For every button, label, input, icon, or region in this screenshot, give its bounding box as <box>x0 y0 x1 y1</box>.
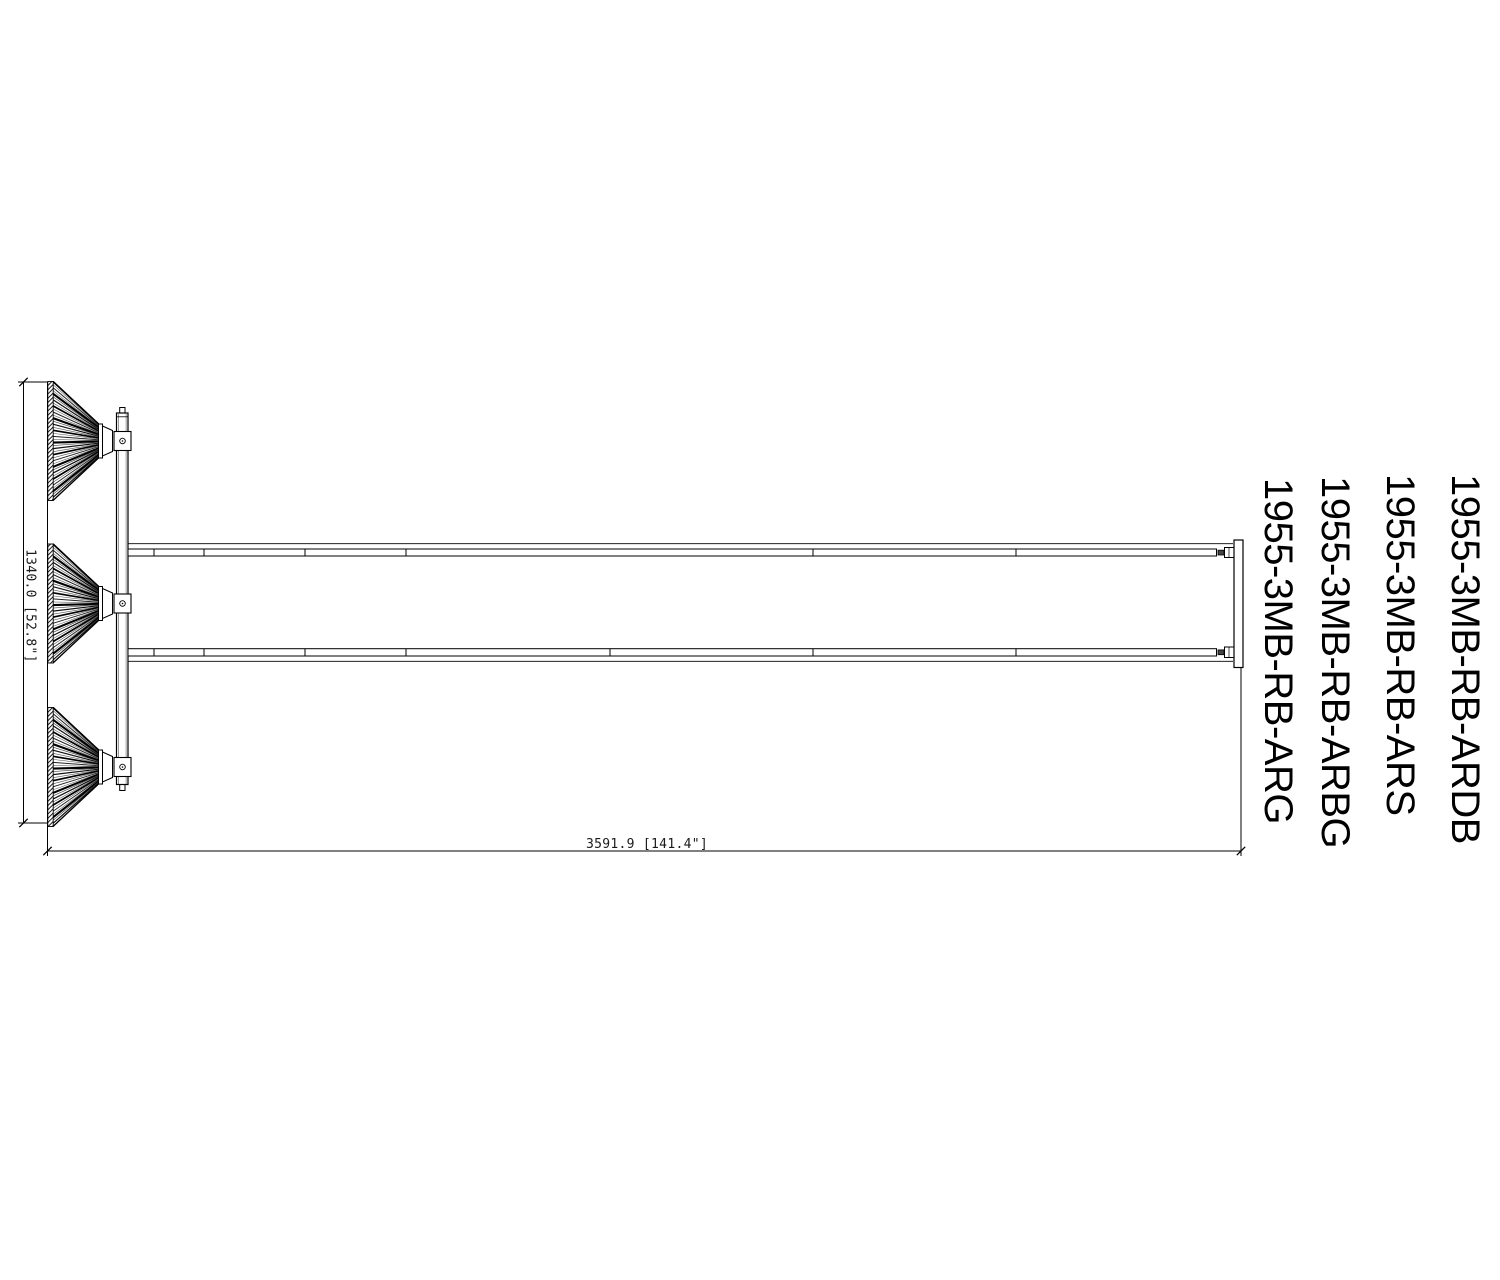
part-label-ars: 1955-3MB-RB-ARS <box>1378 474 1422 816</box>
brush-hub-cone <box>103 426 113 456</box>
mount-plate <box>1234 540 1243 668</box>
bar-top-nub <box>120 408 125 414</box>
drawing-sheet: 1340.0 [52.8"] 3591.9 [141.4"] <box>0 0 1500 1280</box>
mount-block-2 <box>114 594 131 613</box>
lower-rail-pin <box>1218 650 1224 655</box>
part-label-arbg: 1955-3MB-RB-ARBG <box>1313 476 1357 848</box>
brush-back-band <box>48 544 53 663</box>
lower-rail-tube <box>128 649 1217 656</box>
height-dimension-text: 1340.0 [52.8"] <box>23 549 38 663</box>
brush-hub-cone <box>103 589 113 619</box>
bar-bottom-nub <box>120 785 125 791</box>
brush-hub-cone <box>103 752 113 782</box>
brush-back-band <box>48 708 53 827</box>
brush-hub-mouth <box>99 750 103 784</box>
technical-drawing: 1340.0 [52.8"] 3591.9 [141.4"] <box>0 0 1500 1280</box>
upper-rail-tube <box>128 549 1217 556</box>
length-dimension-text: 3591.9 [141.4"] <box>586 837 708 852</box>
part-label-ardb: 1955-3MB-RB-ARDB <box>1443 474 1487 844</box>
brush-back-band <box>48 382 53 501</box>
brush-hub-mouth <box>99 424 103 458</box>
brush-hub-mouth <box>99 587 103 621</box>
mount-block-1 <box>114 432 131 451</box>
mount-block-3 <box>114 758 131 777</box>
part-label-arg: 1955-3MB-RB-ARG <box>1256 478 1300 824</box>
upper-rail-pin <box>1218 550 1224 555</box>
